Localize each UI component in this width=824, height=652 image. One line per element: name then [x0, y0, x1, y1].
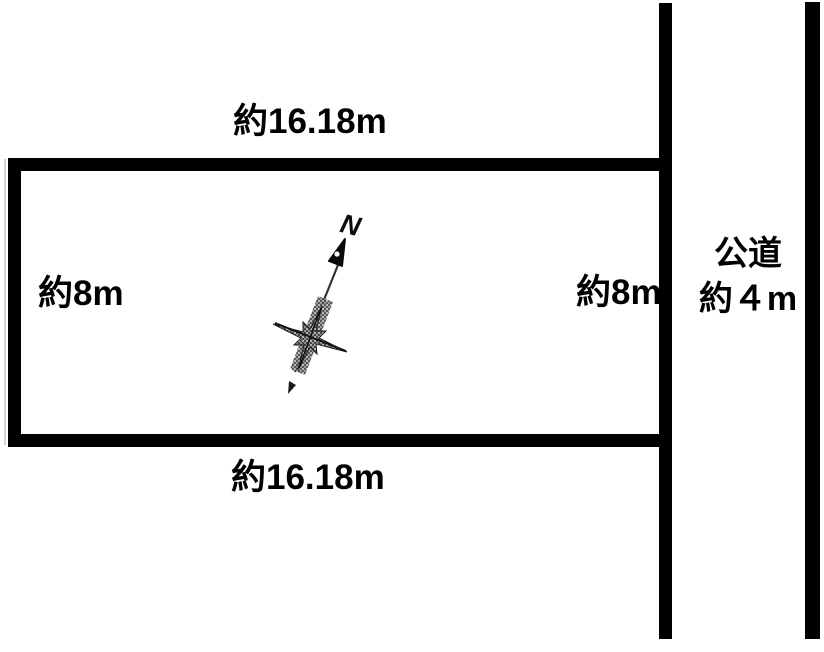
- road-width-label: 約４m: [693, 277, 803, 322]
- south-arrowhead: [288, 381, 296, 394]
- top-dimension-label: 約16.18m: [233, 103, 387, 142]
- road-edge-line-left: [659, 3, 672, 639]
- compass-rose-icon: N: [250, 200, 380, 410]
- road-name-label: 公道: [693, 232, 803, 277]
- road-label: 公道 約４m: [693, 232, 803, 322]
- north-arrowhead-notch: [334, 251, 339, 256]
- left-edge-artifact-line: [4, 159, 6, 445]
- right-dimension-label: 約8m: [576, 274, 662, 313]
- bottom-dimension-label: 約16.18m: [231, 459, 385, 498]
- left-dimension-label: 約8m: [38, 275, 124, 314]
- land-plot-diagram: 約16.18m 約16.18m 約8m 約8m 公道 約４m N: [0, 0, 824, 652]
- north-label: N: [337, 208, 364, 242]
- road-edge-line-right: [805, 2, 820, 639]
